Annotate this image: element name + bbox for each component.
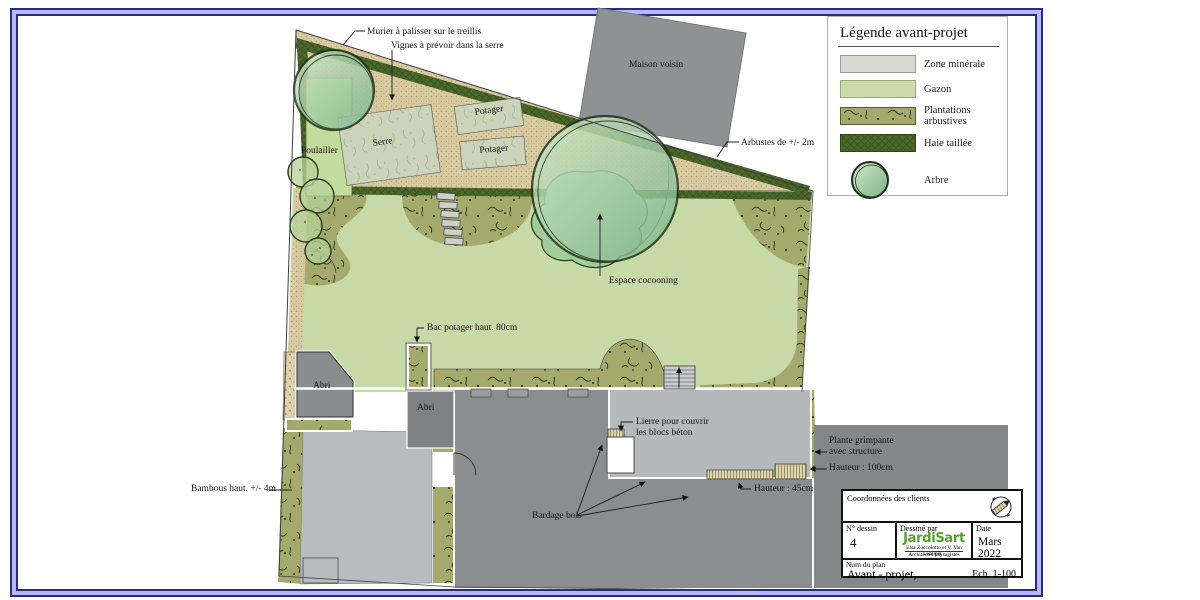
drawing-no-value: 4 <box>850 535 857 551</box>
haie-swatch-icon <box>840 134 916 152</box>
abri-2-shape <box>407 391 454 448</box>
legend-item-arbre: Arbre <box>840 159 999 201</box>
arbre-swatch-icon <box>840 159 916 201</box>
date-label: Date <box>976 524 991 533</box>
concrete-blocks <box>607 437 634 473</box>
jardisart-logo: JardiSart <box>897 531 971 546</box>
architects-line-2: Architectes paysagistes <box>905 551 963 558</box>
clients-label: Coordonnées des clients <box>847 493 930 503</box>
legend-panel: Légende avant-projet Zone minérale Gazon… <box>827 16 1008 196</box>
plan-name-value: Avant - projet, <box>847 567 916 582</box>
label-lierre-2: les blocs béton <box>636 428 692 438</box>
legend-item-haie: Haie taillée <box>840 134 999 152</box>
label-abri-1: Abri <box>313 381 330 391</box>
legend-item-zone-minerale: Zone minérale <box>840 55 999 73</box>
legend-item-gazon: Gazon <box>840 80 999 98</box>
label-bac-potager: Bac potager haut. 80cm <box>427 323 517 333</box>
label-arbustes: Arbustes de +/- 2m <box>741 138 814 148</box>
mineral-swatch-icon <box>840 55 916 73</box>
legend-title: Légende avant-projet <box>840 25 999 42</box>
stairs <box>664 366 695 389</box>
low-wall-2 <box>775 464 806 479</box>
label-poulailler: Poulailler <box>301 146 338 156</box>
label-abri-2: Abri <box>417 403 434 413</box>
label-hauteur-100: Hauteur : 100cm <box>829 463 893 473</box>
label-maison-voisin: Maison voisin <box>629 60 683 70</box>
drawing-no-label: N° dessin <box>846 524 877 533</box>
scale-value: Ech. 1-100 <box>972 569 1016 580</box>
bac-potager-shape <box>406 343 431 390</box>
label-bardage-bois: Bardage bois <box>532 511 582 521</box>
low-wall-45 <box>707 470 773 479</box>
label-plante-grimpante-1: Plante grimpante <box>829 436 894 446</box>
label-espace-cocooning: Espace cocooning <box>609 276 678 286</box>
arbustives-swatch-icon <box>840 107 916 125</box>
label-hauteur-45: Hauteur : 45cm <box>754 484 813 494</box>
date-value: Mars 2022 <box>978 536 1021 560</box>
label-vignes: Vignes à prévoir dans la serre <box>391 41 504 51</box>
garden-plan-page: Murier à palisser sur le treillis Vignes… <box>0 0 1200 600</box>
title-block: Coordonnées des clients N° dessin 4 Dess… <box>841 489 1023 578</box>
label-murier: Murier à palisser sur le treillis <box>367 27 481 37</box>
label-lierre-1: Lierre pour couvrir <box>636 417 709 427</box>
legend-item-plantations: Plantations arbustives <box>840 105 999 127</box>
label-plante-grimpante-2: avec structure <box>829 447 882 457</box>
label-bambous: Bambous haut. +/- 4m <box>191 484 276 494</box>
north-arrow-icon <box>984 492 1018 520</box>
gazon-swatch-icon <box>840 80 916 98</box>
